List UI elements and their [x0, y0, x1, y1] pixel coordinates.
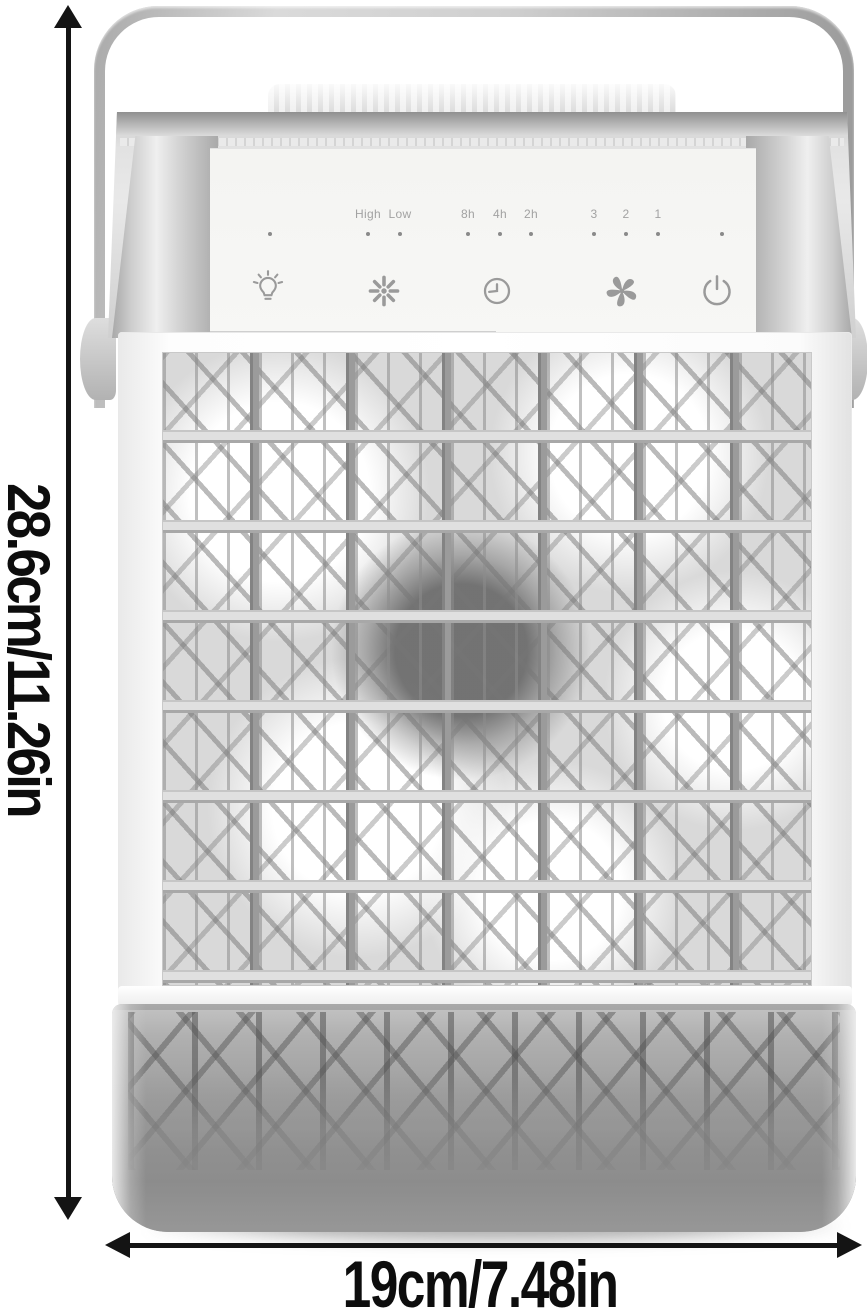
height-arrow-line: [66, 24, 71, 1202]
level-label-1: 1: [655, 207, 662, 221]
width-dimension-label: 19cm/7.48in: [262, 1246, 699, 1309]
fan-icon: [598, 267, 646, 315]
power-indicator-led: [720, 232, 724, 236]
tank-chrome-edge-right: [822, 1004, 856, 1232]
tank-top-edge: [112, 1004, 856, 1010]
water-tank: [112, 1004, 856, 1232]
timer-label-8h: 8h: [461, 207, 475, 221]
touch-control-panel: High Low 8h 4h 2h 3 2 1: [210, 148, 756, 335]
chrome-shoulder-right: [746, 136, 852, 338]
power-icon: [693, 267, 741, 315]
width-arrow-right-head: [837, 1232, 862, 1258]
product-dimension-diagram: 28.6cm/11.26in 19cm/7.48in High Low 8h 4…: [0, 0, 867, 1309]
head-top-band: [108, 112, 856, 136]
head-vent-strip: [120, 138, 844, 146]
timer-2h-led: [529, 232, 533, 236]
light-indicator-led: [268, 232, 272, 236]
level-2-led: [624, 232, 628, 236]
snowflake-icon: [360, 267, 408, 315]
width-arrow-left-head: [105, 1232, 130, 1258]
timer-label-2h: 2h: [524, 207, 538, 221]
timer-clock-icon: [473, 267, 521, 315]
height-arrow-bottom-head: [54, 1197, 82, 1220]
fan-grille: [162, 352, 812, 986]
device-head: High Low 8h 4h 2h 3 2 1: [108, 112, 856, 338]
level-1-led: [656, 232, 660, 236]
tank-shading: [112, 1004, 856, 1232]
timer-4h-led: [498, 232, 502, 236]
high-speed-led: [366, 232, 370, 236]
timer-label-4h: 4h: [493, 207, 507, 221]
speed-label-high: High: [355, 207, 381, 221]
level-3-led: [592, 232, 596, 236]
tank-chrome-edge-left: [112, 1004, 146, 1232]
level-label-2: 2: [623, 207, 630, 221]
level-label-3: 3: [591, 207, 598, 221]
low-speed-led: [398, 232, 402, 236]
tank-lip: [118, 986, 852, 1006]
light-bulb-icon: [244, 267, 292, 315]
height-dimension-label: 28.6cm/11.26in: [0, 483, 63, 816]
timer-8h-led: [466, 232, 470, 236]
speed-label-low: Low: [389, 207, 412, 221]
chrome-shoulder-left: [112, 136, 218, 338]
